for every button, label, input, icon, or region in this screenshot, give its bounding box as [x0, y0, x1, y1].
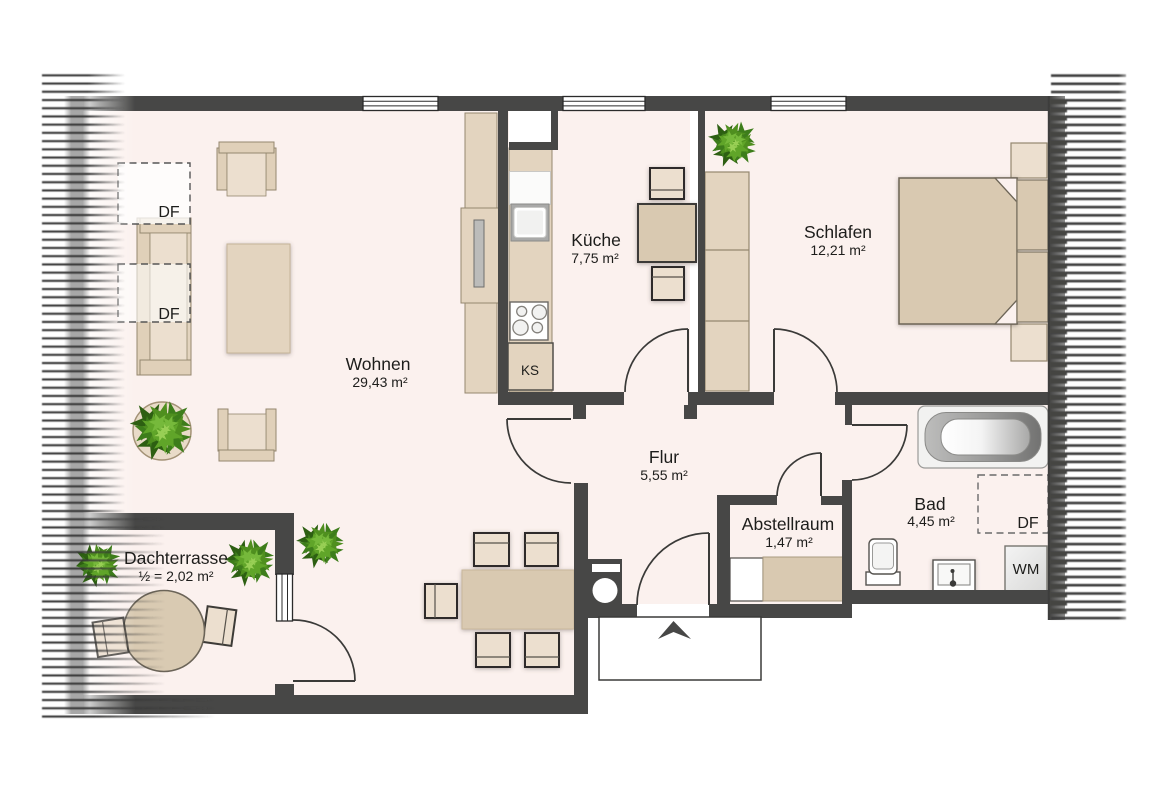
svg-text:1,47 m²: 1,47 m²	[765, 534, 813, 550]
svg-text:Abstellraum: Abstellraum	[742, 514, 834, 534]
svg-text:Dachterrasse: Dachterrasse	[124, 548, 228, 568]
svg-text:4,45 m²: 4,45 m²	[907, 513, 955, 529]
svg-text:½ = 2,02 m²: ½ = 2,02 m²	[138, 568, 213, 584]
svg-text:DF: DF	[158, 204, 180, 221]
svg-text:29,43 m²: 29,43 m²	[352, 374, 408, 390]
svg-text:DF: DF	[158, 306, 180, 323]
svg-text:KS: KS	[521, 363, 539, 378]
svg-text:Wohnen: Wohnen	[346, 354, 411, 374]
svg-text:DF: DF	[1017, 515, 1039, 532]
svg-text:Bad: Bad	[914, 494, 945, 514]
svg-text:Flur: Flur	[649, 447, 679, 467]
svg-text:Küche: Küche	[571, 230, 621, 250]
svg-text:Schlafen: Schlafen	[804, 222, 872, 242]
svg-text:WM: WM	[1013, 561, 1040, 578]
svg-text:5,55 m²: 5,55 m²	[640, 467, 688, 483]
svg-text:12,21 m²: 12,21 m²	[810, 242, 866, 258]
svg-text:7,75 m²: 7,75 m²	[571, 250, 619, 266]
